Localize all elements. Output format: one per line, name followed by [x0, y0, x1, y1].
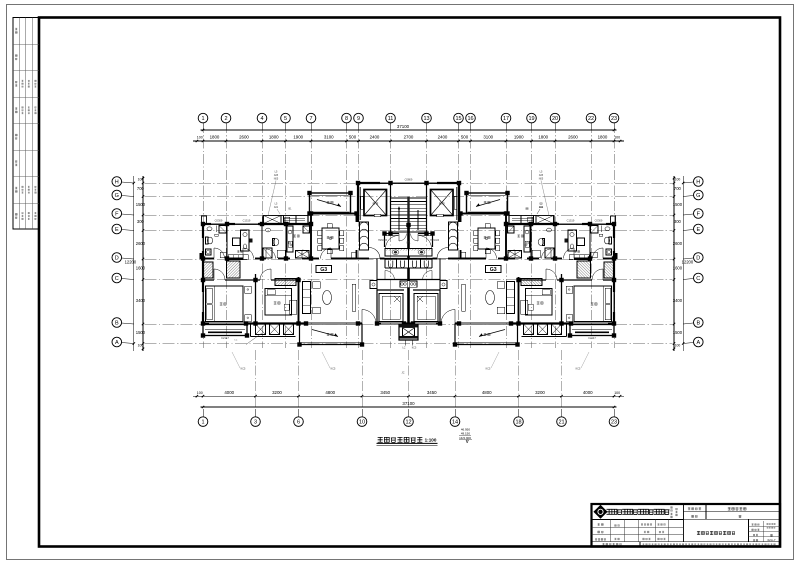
svg-text:1F/2.900: 1F/2.900 [459, 436, 471, 440]
svg-text:D: D [115, 255, 119, 261]
svg-text:KC5: KC5 [412, 348, 417, 350]
svg-text:100: 100 [138, 344, 144, 348]
svg-text:02A-7: 02A-7 [767, 538, 775, 542]
svg-text:C0309: C0309 [215, 219, 223, 223]
svg-text:13: 13 [423, 116, 429, 122]
svg-text:D: D [696, 255, 700, 261]
svg-text:3400: 3400 [136, 298, 146, 303]
svg-text:KC5: KC5 [486, 368, 491, 371]
svg-text:C1519: C1519 [243, 219, 251, 223]
svg-text:22: 22 [588, 116, 594, 122]
svg-text:15: 15 [455, 116, 461, 122]
svg-text:1900: 1900 [514, 135, 524, 140]
svg-text:1500: 1500 [136, 330, 146, 335]
svg-text:4800: 4800 [325, 390, 335, 395]
svg-text:1500: 1500 [673, 330, 683, 335]
svg-text:G3: G3 [320, 267, 327, 273]
svg-text:23: 23 [611, 116, 617, 122]
svg-text:3400: 3400 [673, 298, 683, 303]
svg-text:G3: G3 [490, 267, 497, 273]
svg-text:KC5: KC5 [331, 368, 336, 371]
svg-text:LT1: LT1 [407, 242, 412, 245]
svg-text:11: 11 [388, 116, 394, 122]
svg-text:2600: 2600 [568, 135, 578, 140]
svg-text:3: 3 [254, 420, 257, 426]
svg-text:3200: 3200 [272, 390, 282, 395]
svg-text:37100: 37100 [397, 124, 410, 129]
svg-text:4: 4 [260, 116, 263, 122]
svg-text:9: 9 [357, 116, 360, 122]
svg-text:LC: LC [403, 348, 406, 350]
svg-text:3450: 3450 [427, 390, 437, 395]
svg-text:LC: LC [235, 340, 238, 342]
svg-text:C0309: C0309 [595, 219, 603, 223]
svg-text:19: 19 [528, 116, 534, 122]
svg-text:KC5: KC5 [241, 368, 246, 371]
svg-text:2600: 2600 [673, 241, 683, 246]
svg-text:2600: 2600 [136, 241, 146, 246]
svg-text:100: 100 [138, 178, 144, 182]
svg-text:700: 700 [137, 186, 145, 191]
svg-text:6: 6 [297, 420, 300, 426]
svg-text:JC: JC [402, 372, 405, 375]
svg-text:KC5: KC5 [576, 368, 581, 371]
svg-text:14: 14 [452, 420, 458, 426]
svg-text:1900: 1900 [293, 135, 303, 140]
svg-text:N05: N05 [539, 178, 544, 181]
svg-text:E: E [696, 227, 700, 233]
svg-text:1800: 1800 [538, 135, 548, 140]
svg-text:23: 23 [611, 420, 617, 426]
svg-text:100: 100 [675, 178, 681, 182]
svg-text:1:100: 1:100 [425, 438, 437, 443]
svg-text:1500: 1500 [136, 202, 146, 207]
svg-text:3100: 3100 [483, 135, 493, 140]
svg-text:12200: 12200 [682, 260, 694, 265]
svg-text:21: 21 [558, 420, 564, 426]
svg-text:7: 7 [309, 116, 312, 122]
svg-text:1600: 1600 [136, 265, 146, 270]
svg-text:C: C [115, 276, 119, 282]
svg-text:G: G [696, 193, 700, 199]
svg-text:B: B [115, 320, 119, 326]
svg-text:3100: 3100 [324, 135, 334, 140]
svg-text:C2147: C2147 [221, 336, 229, 340]
svg-text:2600: 2600 [239, 135, 249, 140]
svg-text:5: 5 [284, 116, 287, 122]
svg-text:16: 16 [467, 116, 473, 122]
svg-text:100: 100 [197, 136, 203, 140]
svg-text:2: 2 [224, 116, 227, 122]
svg-text:1: 1 [201, 420, 204, 426]
svg-text:C1519: C1519 [567, 219, 575, 223]
svg-text:2400: 2400 [370, 135, 380, 140]
svg-text:HM1023: HM1023 [430, 239, 440, 242]
svg-text:100: 100 [614, 391, 620, 395]
svg-text:8: 8 [345, 116, 348, 122]
svg-text:HM1023: HM1023 [378, 239, 388, 242]
svg-text:A01: A01 [539, 206, 544, 209]
svg-text:1600: 1600 [673, 265, 683, 270]
svg-text:H: H [696, 179, 700, 185]
svg-text:12200: 12200 [125, 260, 137, 265]
svg-text:A: A [115, 340, 119, 346]
svg-text:1500: 1500 [673, 202, 683, 207]
svg-text:3200: 3200 [535, 390, 545, 395]
svg-text:300: 300 [137, 219, 145, 224]
svg-text:B: B [696, 320, 700, 326]
svg-text:C0809: C0809 [405, 177, 413, 181]
svg-text:12: 12 [405, 420, 411, 426]
svg-text:300: 300 [674, 219, 682, 224]
svg-text:100: 100 [675, 344, 681, 348]
svg-text:G: G [115, 193, 119, 199]
svg-text:20: 20 [552, 116, 558, 122]
svg-text:1800: 1800 [269, 135, 279, 140]
svg-text:100: 100 [614, 136, 620, 140]
svg-text:A01: A01 [274, 206, 279, 209]
svg-text:2400: 2400 [438, 135, 448, 140]
svg-text:A: A [696, 340, 700, 346]
svg-text:100: 100 [197, 391, 203, 395]
svg-text:1800: 1800 [598, 135, 608, 140]
svg-text:2700: 2700 [404, 135, 414, 140]
svg-text:18: 18 [515, 420, 521, 426]
svg-text:700: 700 [674, 186, 682, 191]
svg-text:3450: 3450 [380, 390, 390, 395]
svg-text:10: 10 [359, 420, 365, 426]
svg-text:4800: 4800 [482, 390, 492, 395]
svg-text:C: C [696, 276, 700, 282]
svg-text:E: E [115, 227, 119, 233]
svg-text:1800: 1800 [210, 135, 220, 140]
svg-text:H: H [115, 179, 119, 185]
svg-text:C2147: C2147 [588, 336, 596, 340]
svg-text:4000: 4000 [583, 390, 593, 395]
svg-text:1: 1 [201, 116, 204, 122]
svg-text:N05: N05 [274, 178, 279, 181]
svg-text:37100: 37100 [402, 401, 415, 406]
svg-text:500: 500 [349, 135, 357, 140]
svg-text:17: 17 [503, 116, 509, 122]
svg-text:500: 500 [461, 135, 469, 140]
svg-text:4000: 4000 [224, 390, 234, 395]
